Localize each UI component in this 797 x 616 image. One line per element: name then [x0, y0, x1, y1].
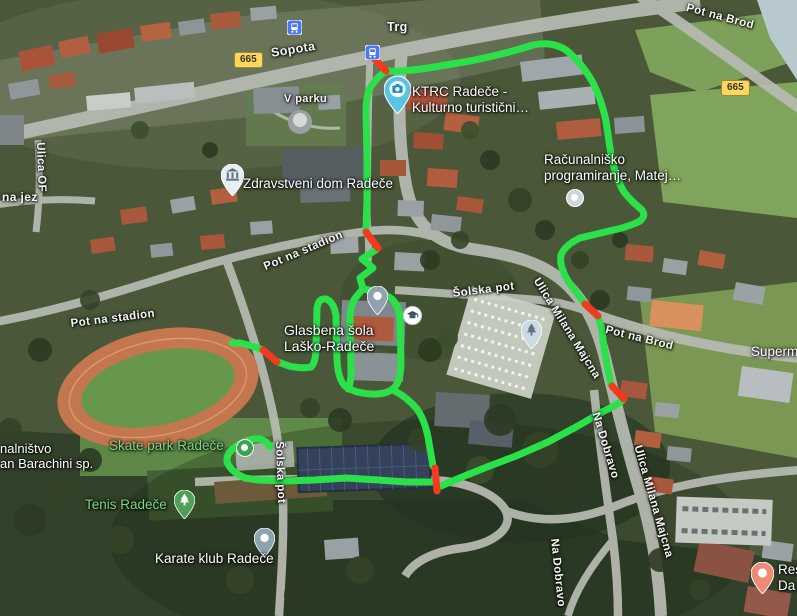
bus-stop-icon[interactable]: [365, 45, 380, 65]
road-label-v-parku: V parku: [284, 93, 327, 106]
glasbena-sola-pin[interactable]: [367, 286, 388, 320]
ktrc-camera-pin[interactable]: [384, 76, 411, 119]
poi-label-ktrc[interactable]: KTRC Radeče - Kulturno turistični…: [412, 84, 529, 115]
bus-stop-icon[interactable]: [287, 20, 302, 40]
poi-label-restavracija[interactable]: Res Da: [778, 562, 797, 593]
poi-label-line: nalništvo: [0, 442, 93, 457]
road-label-ulica-of: Ulica OF: [33, 142, 48, 192]
poi-label-line: Da: [778, 578, 797, 594]
poi-label-line: programiranje, Matej…: [544, 168, 681, 184]
road-label-solska-pot-v: Šolska pot: [272, 441, 287, 504]
poi-label-tenis[interactable]: Tenis Radeče: [85, 497, 167, 513]
route-shield-665-east: 665: [721, 80, 750, 96]
poi-label-line: KTRC Radeče -: [412, 84, 529, 100]
cemetery-tree-pin[interactable]: [521, 320, 542, 354]
poi-dot-center: [241, 444, 248, 451]
map-canvas[interactable]: 665 665 Pot na Brod Trg Sopota V parku U…: [0, 0, 797, 616]
route-segment-red: [435, 468, 437, 491]
poi-label-racunalnisko[interactable]: Računalniško programiranje, Matej…: [544, 152, 681, 183]
road-label-trg: Trg: [387, 20, 408, 34]
poi-label-line: Računalniško: [544, 152, 681, 168]
poi-dot-center: [571, 194, 578, 201]
skatepark-green-dot[interactable]: [236, 439, 254, 457]
poi-label-barachini[interactable]: nalništvo an Barachini sp.: [0, 442, 93, 472]
poi-label-glasbena-sola[interactable]: Glasbena šola Laško-Radeče: [284, 322, 374, 354]
racunalnisko-poi-dot[interactable]: [566, 189, 584, 207]
tenis-tree-pin[interactable]: [174, 490, 195, 524]
route-shield-665-west: 665: [234, 52, 263, 68]
clinic-building-pin[interactable]: [221, 164, 244, 201]
poi-label-line: Glasbena šola: [284, 322, 374, 338]
poi-label-line: Kulturno turistični…: [412, 100, 529, 116]
poi-label-line: an Barachini sp.: [0, 457, 93, 472]
poi-label-line: Laško-Radeče: [284, 338, 374, 354]
poi-label-zdravstveni-dom[interactable]: Zdravstveni dom Radeče: [243, 176, 393, 192]
restavracija-pin[interactable]: [751, 562, 774, 599]
road-label-na-jez: na jez: [2, 191, 38, 205]
poi-label-karate-klub[interactable]: Karate klub Radeče: [155, 551, 274, 567]
parking-lot: [675, 496, 773, 545]
poi-label-supermarket[interactable]: Superm: [751, 344, 797, 360]
poi-label-skate-park[interactable]: Skate park Radeče: [109, 438, 224, 454]
poi-label-line: Res: [778, 562, 797, 578]
graduation-cap-icon[interactable]: [403, 306, 422, 325]
